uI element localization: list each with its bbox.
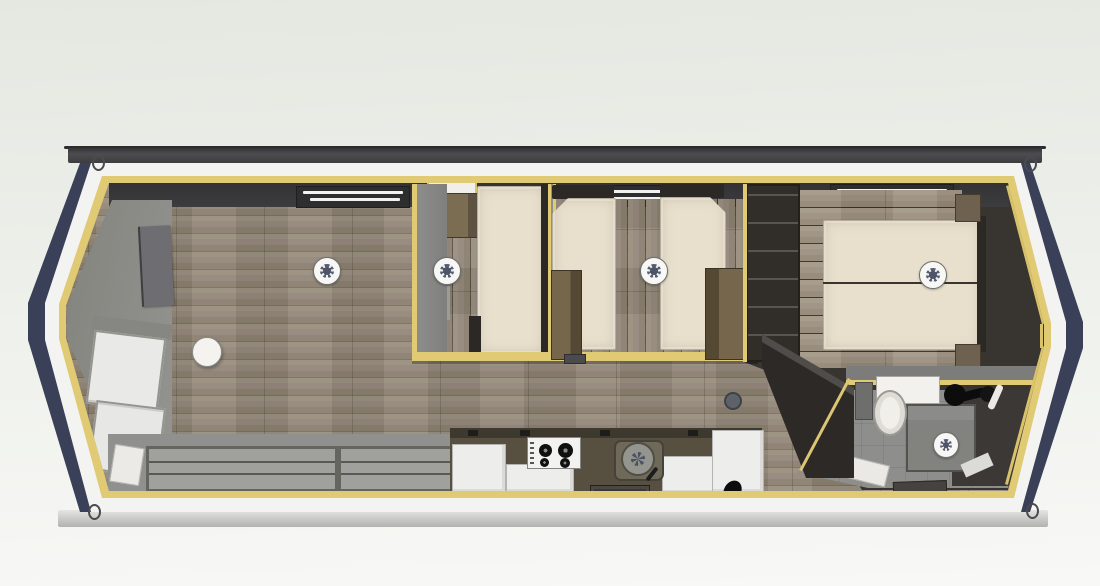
open-shelving-unit	[746, 184, 800, 362]
seat-cushion	[109, 444, 145, 486]
worktop-fitting-2	[520, 430, 530, 436]
double-bed	[477, 186, 545, 354]
twin-headboard-left	[552, 185, 614, 199]
ceiling-light-bathroom	[933, 432, 959, 458]
ceiling-light-living	[313, 257, 341, 285]
sliding-door-frame-2	[338, 446, 458, 492]
master-headboard	[977, 216, 986, 352]
hob-controls	[530, 442, 534, 464]
master-bed	[823, 220, 981, 350]
twin-headboard-right	[660, 184, 724, 198]
floorplan-render	[0, 0, 1100, 586]
ceiling-light-bedroom-double	[433, 257, 461, 285]
double-bed-corner-frame	[469, 316, 481, 354]
roof-window-living	[296, 186, 410, 208]
end-trim-mid	[1040, 324, 1043, 348]
roof-edge-bar	[68, 148, 1042, 163]
kitchen-cabinet-3	[662, 456, 716, 494]
bedside-cabinet-top	[955, 194, 981, 222]
ceiling-light-bedroom-twin	[640, 257, 668, 285]
worktop-fitting-1	[468, 430, 478, 436]
twin-wardrobe-left	[551, 270, 582, 360]
lifting-ring-bottom-left	[88, 504, 101, 520]
twin-wardrobe-right	[705, 268, 745, 360]
sliding-door-frame-1	[146, 446, 338, 492]
round-side-table	[192, 337, 222, 367]
gas-hob	[527, 437, 581, 469]
chassis-base-rail	[58, 510, 1048, 527]
floor-vent	[724, 392, 742, 410]
worktop-fitting-4	[688, 430, 698, 436]
worktop-fitting-3	[600, 430, 610, 436]
bathroom-cabinet	[855, 382, 873, 420]
partition-trim-2	[743, 184, 747, 362]
partition-trim-1	[412, 184, 417, 361]
toilet	[873, 390, 907, 436]
lifting-ring-top-right	[1024, 156, 1037, 172]
kitchen-cabinet-1	[452, 444, 506, 493]
ceiling-light-master	[919, 261, 947, 289]
wall-control-panel	[564, 354, 586, 364]
kitchen-sink	[621, 442, 655, 476]
tv-panel	[138, 225, 174, 307]
master-bed-split-line	[823, 282, 979, 284]
lifting-ring-bottom-right	[1026, 503, 1039, 519]
lifting-ring-top-left	[92, 155, 105, 171]
